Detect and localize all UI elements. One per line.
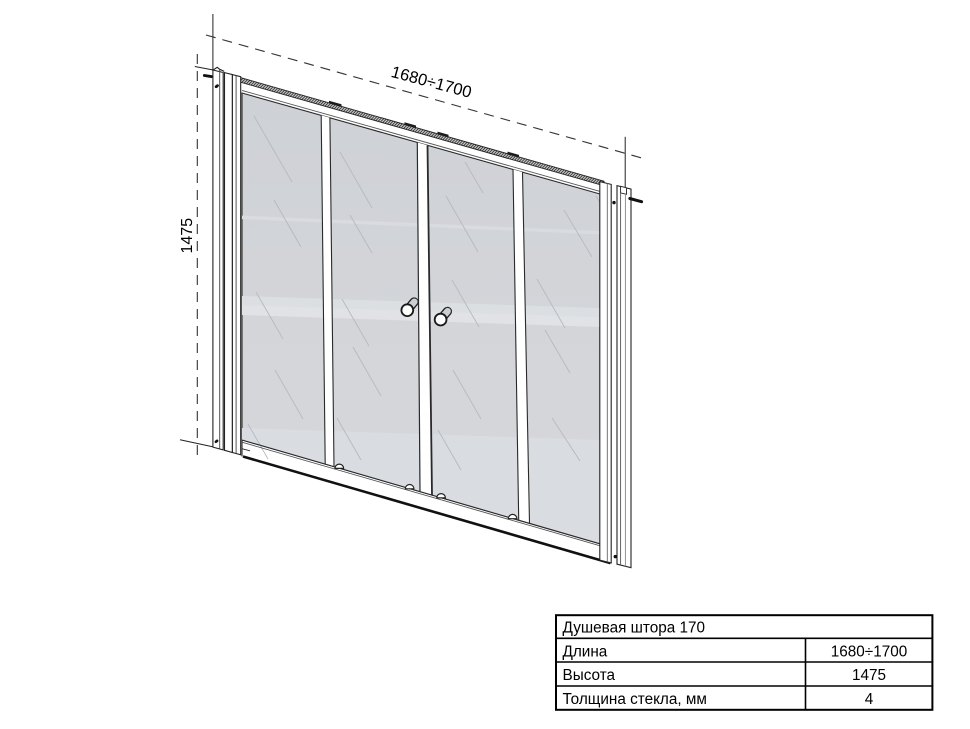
- svg-text:1680÷1700: 1680÷1700: [831, 643, 907, 660]
- svg-text:Длина: Длина: [563, 643, 608, 660]
- svg-text:Душевая штора 170: Душевая штора 170: [563, 620, 706, 637]
- svg-text:1475: 1475: [852, 667, 886, 684]
- svg-text:Высота: Высота: [563, 667, 616, 684]
- svg-text:4: 4: [865, 691, 874, 708]
- svg-text:Толщина стекла, мм: Толщина стекла, мм: [563, 691, 707, 708]
